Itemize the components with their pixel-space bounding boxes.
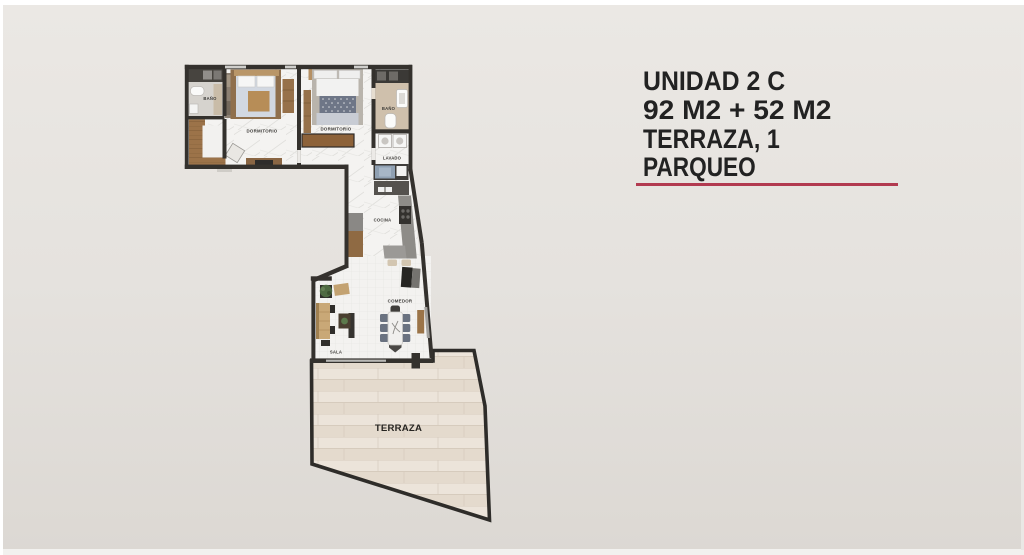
- svg-text:TERRAZA: TERRAZA: [375, 423, 422, 434]
- svg-text:SALA: SALA: [330, 350, 342, 355]
- svg-text:COCINA: COCINA: [374, 218, 392, 223]
- svg-text:BAÑO: BAÑO: [203, 96, 217, 101]
- svg-text:BAÑO: BAÑO: [382, 106, 396, 111]
- svg-text:LAVADO: LAVADO: [383, 156, 402, 161]
- svg-text:DORMITORIO: DORMITORIO: [321, 127, 352, 132]
- svg-text:COMEDOR: COMEDOR: [388, 298, 413, 303]
- svg-text:DORMITORIO: DORMITORIO: [247, 129, 278, 134]
